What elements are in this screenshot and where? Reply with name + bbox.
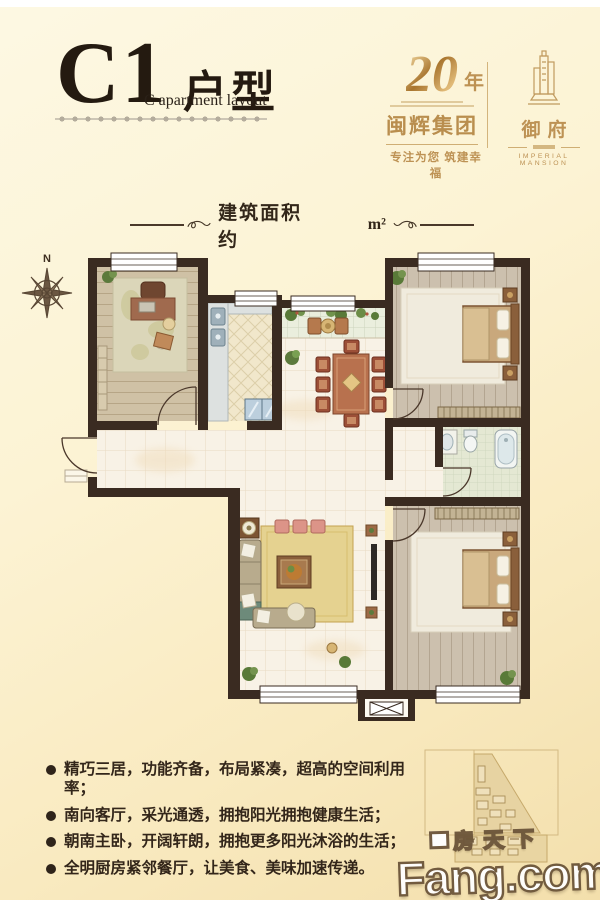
area-line: 建筑面积约 m² xyxy=(130,198,474,252)
brand-divider xyxy=(487,62,488,148)
watermark-en: Fang.com xyxy=(396,850,600,900)
project-ornament xyxy=(508,145,580,150)
pillow xyxy=(256,609,271,624)
bookshelf xyxy=(98,346,107,410)
headboard xyxy=(511,548,519,610)
flourish-icon xyxy=(187,219,211,231)
fang-logo-icon xyxy=(429,831,450,850)
project-name-en: IMPERIAL MANSION xyxy=(500,153,588,167)
bullet-icon xyxy=(46,811,56,821)
pillow xyxy=(497,338,509,358)
micro-text-bar xyxy=(390,105,474,107)
feature-item: 南向客厅，采光通透，拥抱阳光拥抱健康生活； xyxy=(46,806,426,825)
pillow xyxy=(497,310,509,330)
pouf xyxy=(287,603,305,621)
ornament-chain xyxy=(55,112,267,126)
flourish-icon xyxy=(393,219,417,231)
pillow xyxy=(497,556,509,576)
rule-right xyxy=(420,224,474,226)
gold-rule xyxy=(386,144,478,145)
bullet-icon xyxy=(46,765,56,775)
plan-type-cn: 户型 xyxy=(183,56,279,120)
side-plate xyxy=(163,318,175,330)
group-name: 闽辉集团 xyxy=(384,110,480,140)
floor-cushions xyxy=(275,520,325,533)
hallway-floor xyxy=(208,430,393,497)
pillow xyxy=(241,593,256,608)
top-white-strip xyxy=(0,0,600,7)
blanket xyxy=(463,552,489,606)
decor-item xyxy=(327,643,337,653)
fang-watermark: 房天下 Fang.com xyxy=(395,820,600,900)
bistro-chair xyxy=(308,318,321,334)
bullet-icon xyxy=(46,837,56,847)
toilet xyxy=(464,436,477,452)
bistro-chair xyxy=(335,318,348,334)
pillow xyxy=(241,543,256,558)
area-unit: m² xyxy=(368,216,386,234)
tv xyxy=(371,544,377,600)
desk-item xyxy=(139,302,155,312)
anniversary-logo: 20 年 xyxy=(384,50,480,107)
elevator-shaft xyxy=(365,699,408,717)
anniversary-suffix: 年 xyxy=(464,66,484,95)
rule-left xyxy=(130,224,184,226)
floor-plan xyxy=(45,250,532,722)
feature-item: 精巧三居，功能齐备，布局紧凑，超高的空间利用率； xyxy=(46,760,426,799)
plant xyxy=(339,656,351,668)
micro-text-bar xyxy=(401,101,463,103)
project-name-cn: 御府 xyxy=(500,115,588,142)
area-label: 建筑面积约 xyxy=(218,198,316,252)
floorplan-poster: C1 户型 C apartment layout 20 年 闽辉集团 专注为您 … xyxy=(0,0,600,900)
anniversary-number: 20 xyxy=(406,50,458,99)
plan-type-en: C apartment layout xyxy=(144,92,267,110)
brand-slogan: 专注为您 筑建幸福 xyxy=(384,149,488,181)
headboard xyxy=(511,304,519,364)
table-plant xyxy=(286,564,302,580)
pillow xyxy=(497,584,509,604)
bullet-icon xyxy=(46,864,56,874)
wardrobe xyxy=(435,508,519,519)
project-logo: 御府 IMPERIAL MANSION xyxy=(500,50,588,167)
entry-door xyxy=(62,438,97,473)
brand-block: 20 年 闽辉集团 专注为您 筑建幸福 御府 I xyxy=(384,50,590,180)
feature-item: 全明厨房紧邻餐厅，让美食、美味加速传递。 xyxy=(46,859,426,878)
feature-item: 朝南主卧，开阔轩朗，拥抱更多阳光沐浴的生活； xyxy=(46,832,426,851)
blanket xyxy=(463,308,489,360)
imperial-mansion-building-icon xyxy=(521,50,567,108)
wardrobe xyxy=(438,407,520,418)
feature-list: 精巧三居，功能齐备，布局紧凑，超高的空间利用率； 南向客厅，采光通透，拥抱阳光拥… xyxy=(46,760,426,885)
study-chair xyxy=(141,282,165,299)
